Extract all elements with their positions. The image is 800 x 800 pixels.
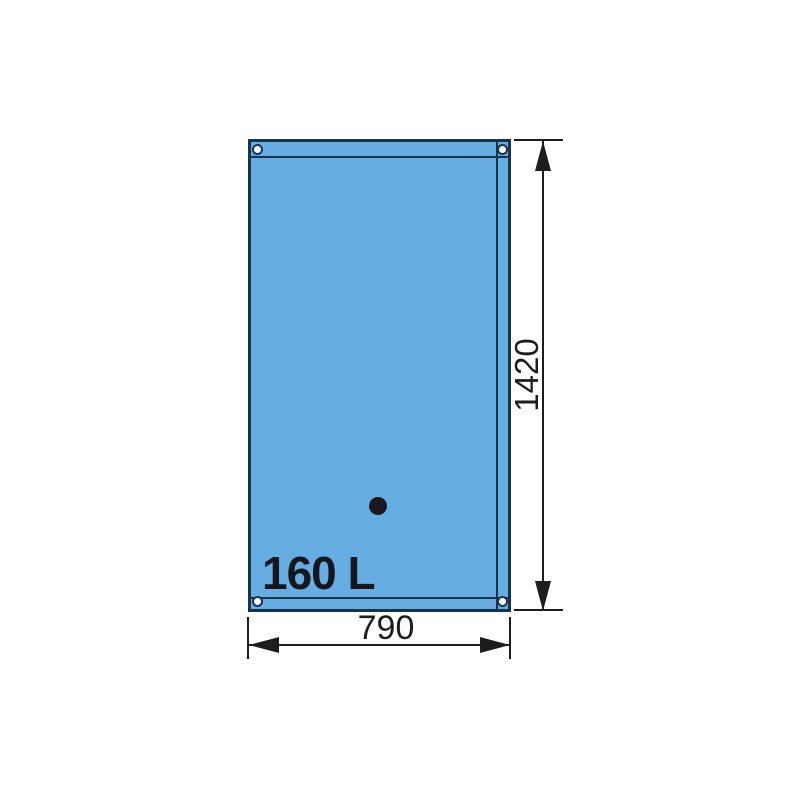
arrow-down-icon (535, 581, 551, 611)
filler-cap-dot (369, 497, 387, 515)
corner-eyelet-bottom-right (497, 596, 508, 607)
capacity-label: 160 L (262, 550, 375, 596)
arrow-right-icon (480, 637, 510, 653)
height-value-label: 1420 (511, 325, 543, 425)
corner-eyelet-top-left (252, 144, 263, 155)
tank-body: 160 L (248, 139, 511, 612)
product-dimension-diagram: 160 L 1420 790 (0, 0, 800, 800)
tank-right-seam (496, 142, 498, 609)
corner-eyelet-top-right (497, 144, 508, 155)
tank-top-seam (251, 156, 508, 158)
width-value-label: 790 (316, 611, 456, 645)
arrow-up-icon (535, 141, 551, 171)
arrow-left-icon (249, 637, 279, 653)
